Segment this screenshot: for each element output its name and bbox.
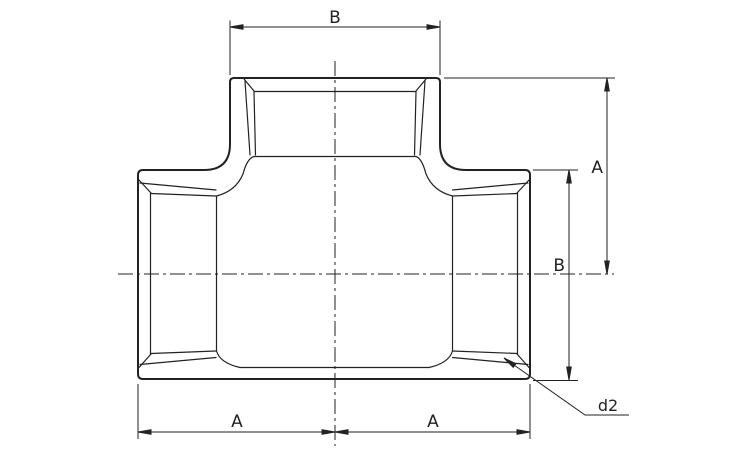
leader-label-d2: d2 [598, 396, 618, 415]
dim-label-top-width: B [329, 8, 341, 28]
drawing-background [0, 0, 750, 450]
drawing-canvas: B A B A A d2 [0, 0, 750, 450]
dim-label-body-height: B [553, 256, 565, 276]
dim-label-bottom-left: A [231, 412, 243, 432]
dim-label-branch-height: A [591, 158, 603, 178]
tee-fitting-technical-drawing: B A B A A d2 [0, 0, 750, 450]
dim-label-bottom-right: A [427, 412, 439, 432]
